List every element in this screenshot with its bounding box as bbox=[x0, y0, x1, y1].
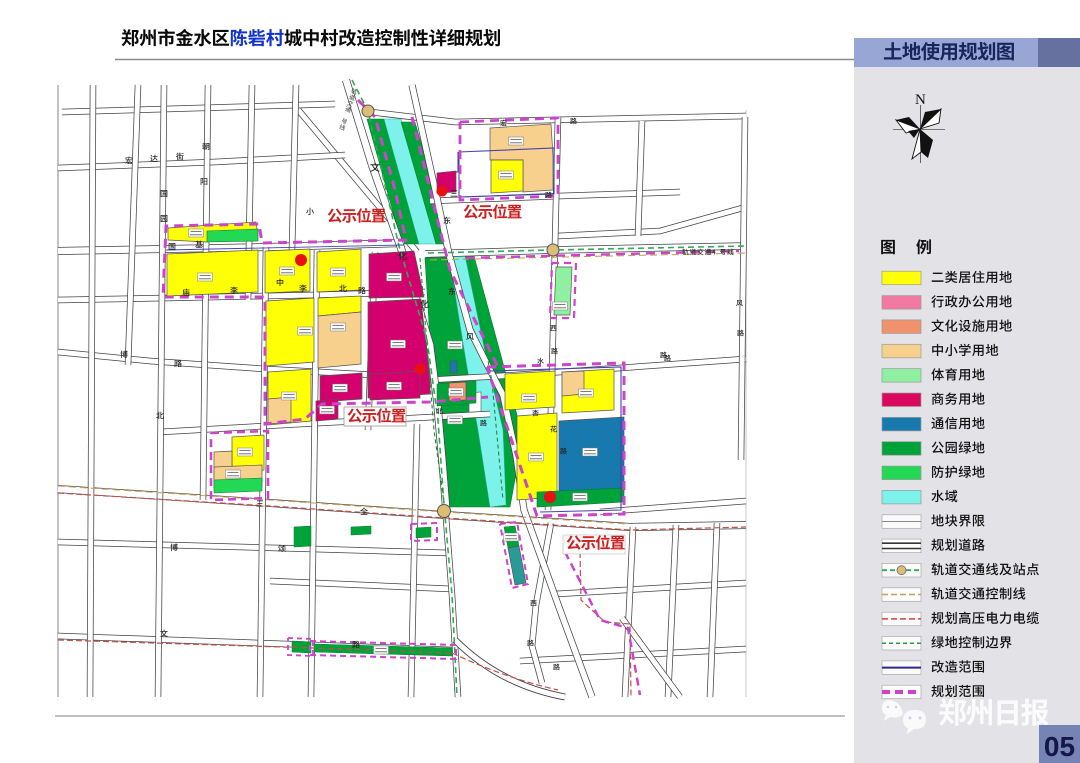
svg-text:05: 05 bbox=[1044, 731, 1075, 762]
